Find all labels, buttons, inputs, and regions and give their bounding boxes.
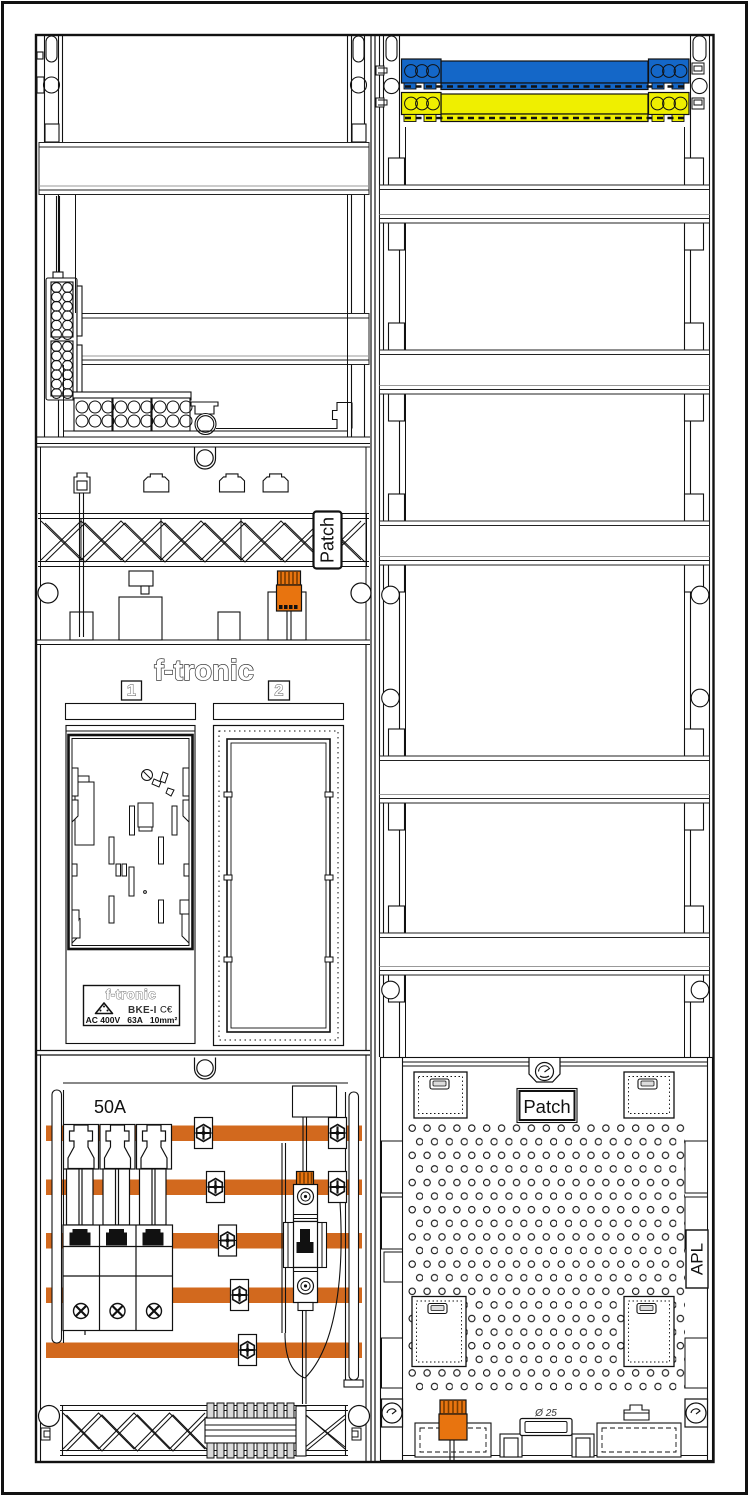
svg-text:AC 400V 63A 10mm²: AC 400V 63A 10mm² [86, 1015, 178, 1025]
svg-text:1: 1 [127, 683, 136, 700]
svg-text:f-tronic: f-tronic [106, 987, 157, 1002]
svg-text:2: 2 [275, 683, 284, 700]
svg-text:Patch: Patch [523, 1096, 570, 1117]
svg-text:C€: C€ [160, 1005, 173, 1016]
svg-text:Patch: Patch [318, 517, 338, 563]
svg-text:APL: APL [688, 1243, 707, 1275]
svg-text:50A: 50A [94, 1097, 126, 1117]
svg-text:f-tronic: f-tronic [154, 655, 254, 687]
svg-text:Ø 25: Ø 25 [534, 1408, 557, 1419]
